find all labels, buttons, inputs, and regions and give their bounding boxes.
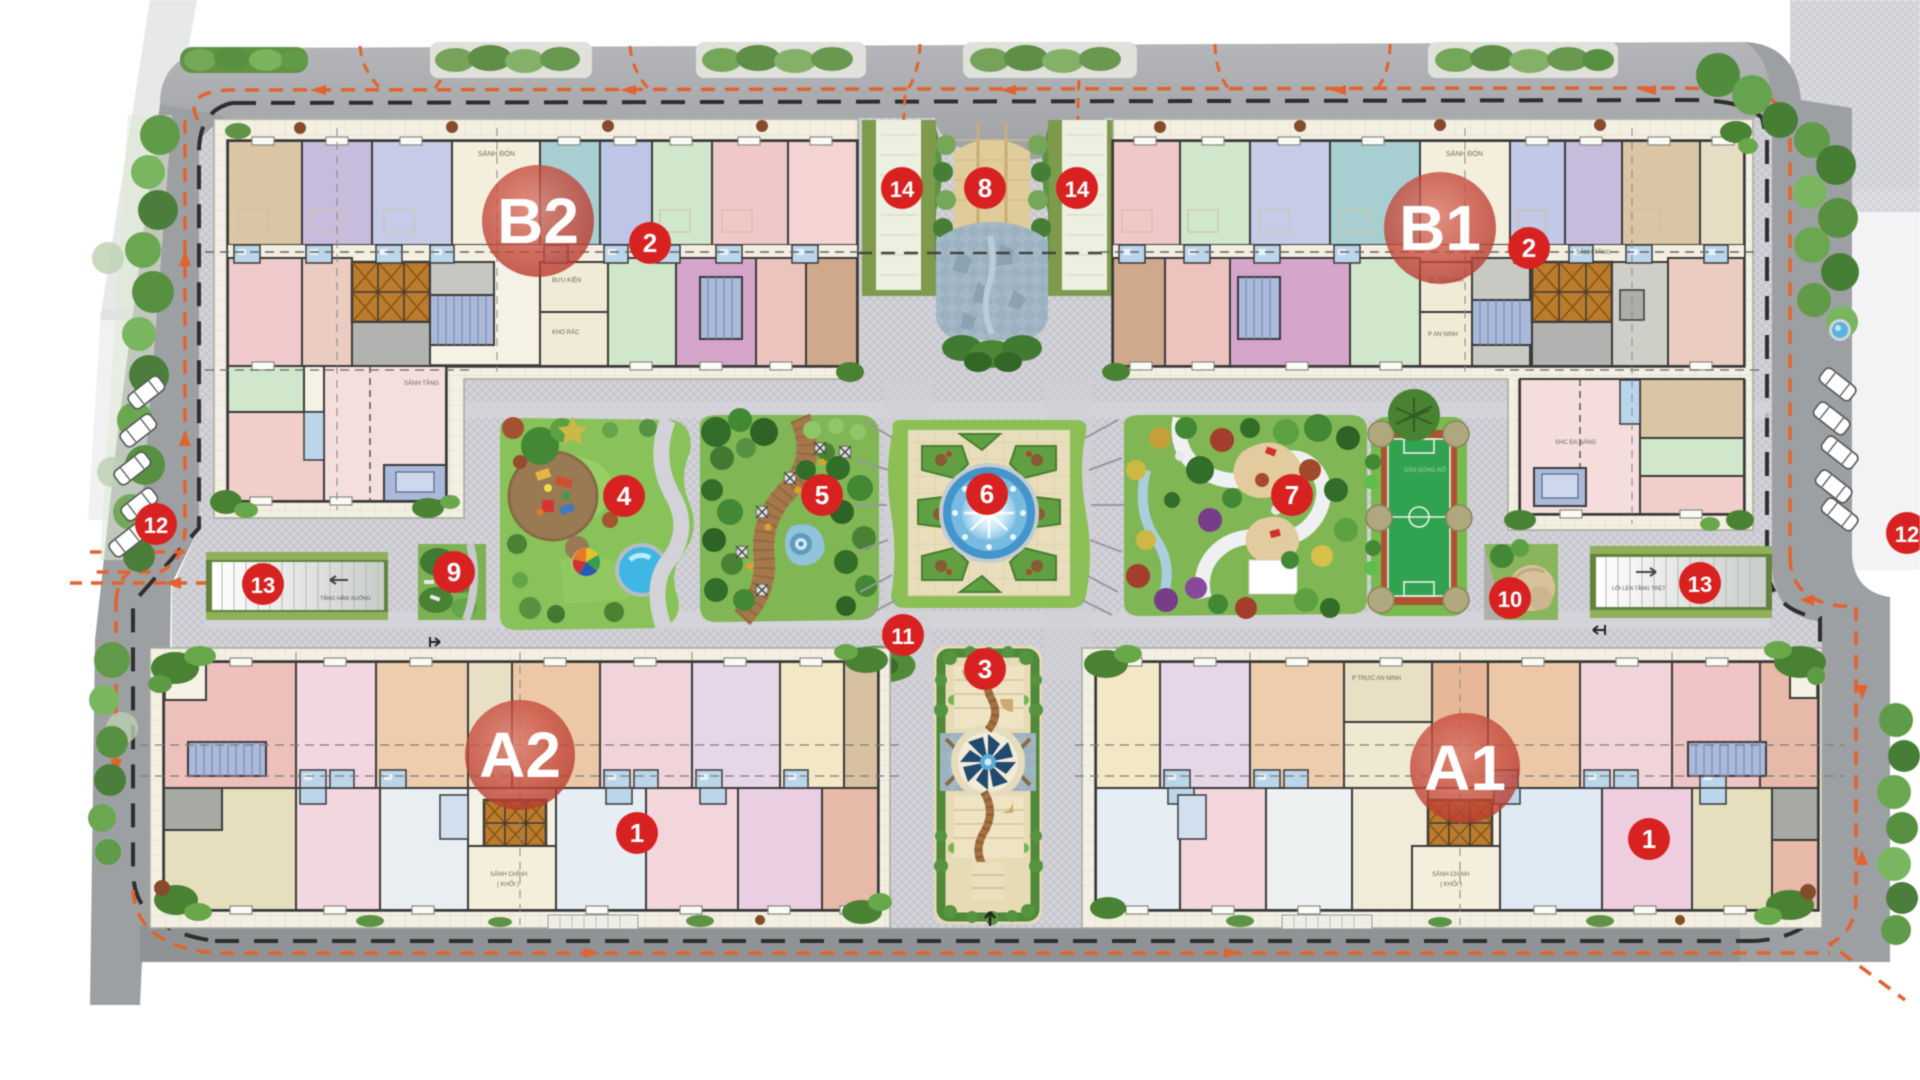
svg-text:A2: A2 [479,719,561,791]
svg-text:14: 14 [1065,177,1090,202]
svg-text:P TRỰC AN NINH: P TRỰC AN NINH [1352,676,1401,682]
svg-text:13: 13 [1688,572,1712,597]
svg-text:4: 4 [617,481,632,511]
svg-text:3: 3 [978,654,992,684]
svg-text:1: 1 [630,818,644,848]
svg-text:TẦNG HẦM XUỐNG: TẦNG HẦM XUỐNG [320,595,371,602]
svg-text:2: 2 [643,228,657,258]
svg-text:12: 12 [144,513,168,538]
svg-text:B2: B2 [497,185,579,257]
svg-text:SẢNH ĐÓN: SẢNH ĐÓN [478,149,515,158]
svg-text:1: 1 [1642,824,1656,854]
svg-text:A1: A1 [1424,732,1506,804]
svg-text:SẢNH CHÍNH: SẢNH CHÍNH [1432,871,1469,878]
svg-text:12: 12 [1895,522,1919,547]
svg-text:2: 2 [1522,233,1536,263]
svg-text:11: 11 [891,624,914,649]
svg-text:SÂN BÓNG RỔ: SÂN BÓNG RỔ [1404,467,1447,474]
svg-text:B1: B1 [1399,192,1481,264]
svg-text:SẢNH TẦNG: SẢNH TẦNG [1576,249,1611,256]
svg-text:13: 13 [251,573,275,598]
svg-text:KHO RÁC: KHO RÁC [552,329,580,336]
svg-text:( KHỐI ): ( KHỐI ) [1440,881,1462,888]
svg-text:14: 14 [890,177,915,202]
svg-text:7: 7 [1285,480,1299,510]
svg-text:8: 8 [978,173,992,203]
svg-text:9: 9 [447,557,461,587]
svg-text:BƯU KIỆN: BƯU KIỆN [552,276,581,284]
svg-text:10: 10 [1498,587,1522,612]
svg-text:LỐI LÊN TẦNG TRỆT: LỐI LÊN TẦNG TRỆT [1612,584,1666,592]
svg-text:SẢNH CHÍNH: SẢNH CHÍNH [490,871,527,878]
svg-text:P AN NINH: P AN NINH [1428,332,1458,338]
svg-text:( KHỐI ): ( KHỐI ) [497,881,519,888]
svg-text:SẢNH TẦNG: SẢNH TẦNG [404,380,439,387]
svg-text:6: 6 [980,479,994,509]
svg-text:SHC ĐA NĂNG: SHC ĐA NĂNG [1555,439,1597,446]
svg-text:5: 5 [815,480,829,510]
svg-text:SẢNH ĐÓN: SẢNH ĐÓN [1446,149,1483,158]
